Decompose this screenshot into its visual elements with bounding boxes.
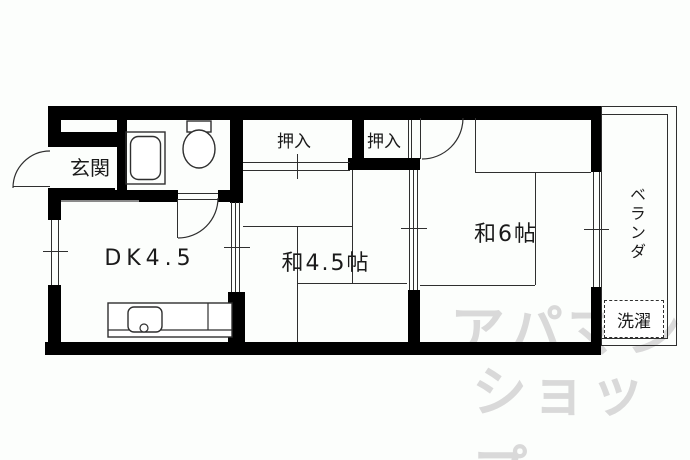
bathroom-door-frame	[178, 199, 218, 200]
wall	[117, 120, 127, 201]
door-center-mark	[401, 228, 427, 229]
washitsu6-door-leaf	[420, 118, 421, 159]
toilet	[183, 130, 215, 168]
washitsu6-door-arc	[422, 118, 463, 159]
tatami-line	[475, 118, 476, 172]
wall	[348, 158, 420, 170]
room-label-genkan: 玄関	[64, 152, 116, 181]
room-label-washitsu45: 和4.5帖	[272, 245, 380, 277]
closet-partition	[408, 120, 409, 158]
laundry-area-box: 洗濯	[604, 300, 664, 338]
tatami-line	[475, 172, 591, 173]
bathroom-door-arc	[178, 198, 218, 238]
bathroom-door-leaf	[177, 199, 178, 238]
entrance-door-leaf	[13, 186, 50, 187]
bathtub-unit-outline	[126, 132, 165, 184]
wall	[228, 292, 245, 342]
bathtub	[131, 137, 161, 180]
wall	[591, 287, 601, 355]
sink-drain	[140, 324, 148, 332]
kitchen-sink	[128, 307, 162, 332]
tatami-line	[297, 226, 298, 342]
wall	[48, 106, 601, 120]
wall	[45, 342, 601, 355]
bathroom-door-frame	[178, 193, 218, 194]
wall	[591, 120, 601, 172]
window-left-pane	[51, 220, 52, 285]
room-label-dk: DK4.5	[100, 246, 200, 271]
tatami-line	[297, 283, 407, 284]
kitchen-counter	[108, 303, 232, 337]
tatami-line	[420, 285, 535, 286]
closet-label-2: 押入	[362, 127, 406, 152]
toilet-tank	[187, 121, 211, 132]
entrance-door-arc	[13, 151, 50, 188]
laundry-label: 洗濯	[617, 307, 651, 332]
window-left-pane	[58, 220, 59, 285]
room-label-washitsu6: 和6帖	[466, 216, 546, 248]
closet-partition	[411, 120, 412, 158]
window-center-mark	[43, 251, 68, 252]
sliding-door-w45-w6	[413, 170, 414, 290]
entrance-step-line	[61, 200, 139, 202]
floor-plan: アパマン ショップ	[0, 0, 690, 460]
closet-label-1: 押入	[272, 127, 316, 152]
door-center-mark	[224, 247, 250, 248]
wall	[408, 290, 420, 342]
door-center-mark	[297, 154, 298, 179]
wall	[230, 120, 243, 203]
sliding-door-w45-w6	[409, 170, 410, 290]
tatami-line	[243, 226, 353, 227]
watermark-text-line2: ショップ	[472, 347, 690, 460]
wall	[48, 132, 118, 147]
room-label-veranda: ベランダ	[624, 186, 648, 262]
sliding-door-w45-w6	[417, 170, 418, 290]
